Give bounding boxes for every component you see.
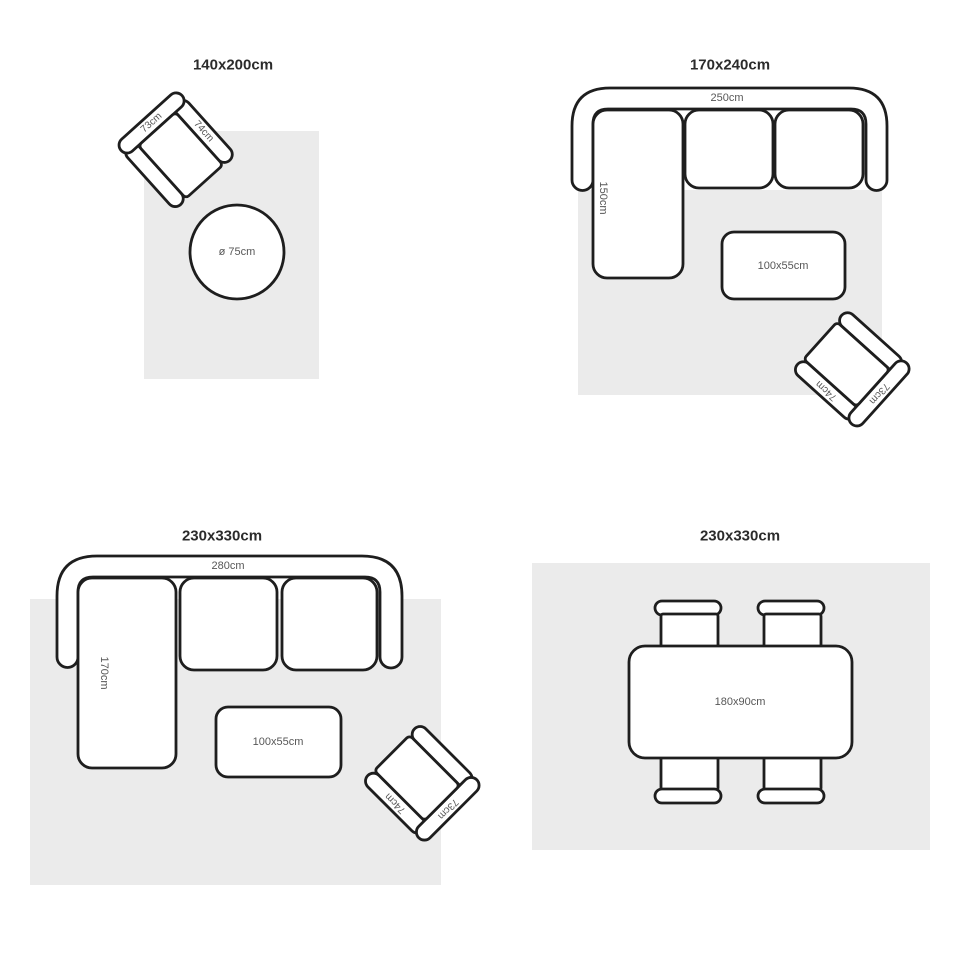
round-side-table-label: ø 75cm xyxy=(219,246,256,258)
sofa-cushion xyxy=(685,110,773,188)
chair-backrest xyxy=(758,789,824,803)
layout-230x330-dining: 230x330cm 180x90cm xyxy=(532,528,930,851)
sofa-chaise xyxy=(78,578,176,768)
layout-title: 230x330cm xyxy=(700,528,780,545)
dining-chair-top-right xyxy=(758,601,824,651)
layout-title: 140x200cm xyxy=(193,57,273,74)
dining-chair-bottom-left xyxy=(655,753,721,803)
rug-size-guide: 140x200cm 73cm 74cm ø 75cm 170x240cm 250… xyxy=(0,0,970,970)
coffee-table-label: 100x55cm xyxy=(758,260,809,272)
dining-chair-bottom-right xyxy=(758,753,824,803)
layout-170x240: 170x240cm 250cm 150cm 100x55cm 73cm 74cm xyxy=(572,57,912,430)
sofa-width-label: 250cm xyxy=(710,92,743,104)
sofa-cushion xyxy=(282,578,377,670)
rug-size-guide-canvas: 140x200cm 73cm 74cm ø 75cm 170x240cm 250… xyxy=(0,0,970,970)
layout-230x330-sofa: 230x330cm 280cm 170cm 100x55cm 73cm 74cm xyxy=(30,528,482,886)
chair-backrest xyxy=(655,789,721,803)
dining-chair-top-left xyxy=(655,601,721,651)
sofa-depth-label: 170cm xyxy=(98,656,110,689)
sofa-width-label: 280cm xyxy=(211,560,244,572)
dining-table-label: 180x90cm xyxy=(715,696,766,708)
sofa-cushion xyxy=(180,578,277,670)
layout-title: 170x240cm xyxy=(690,57,770,74)
sofa-cushion xyxy=(775,110,863,188)
sofa-depth-label: 150cm xyxy=(597,181,609,214)
coffee-table-label: 100x55cm xyxy=(253,736,304,748)
layout-title: 230x330cm xyxy=(182,528,262,545)
layout-140x200: 140x200cm 73cm 74cm ø 75cm xyxy=(116,57,319,380)
